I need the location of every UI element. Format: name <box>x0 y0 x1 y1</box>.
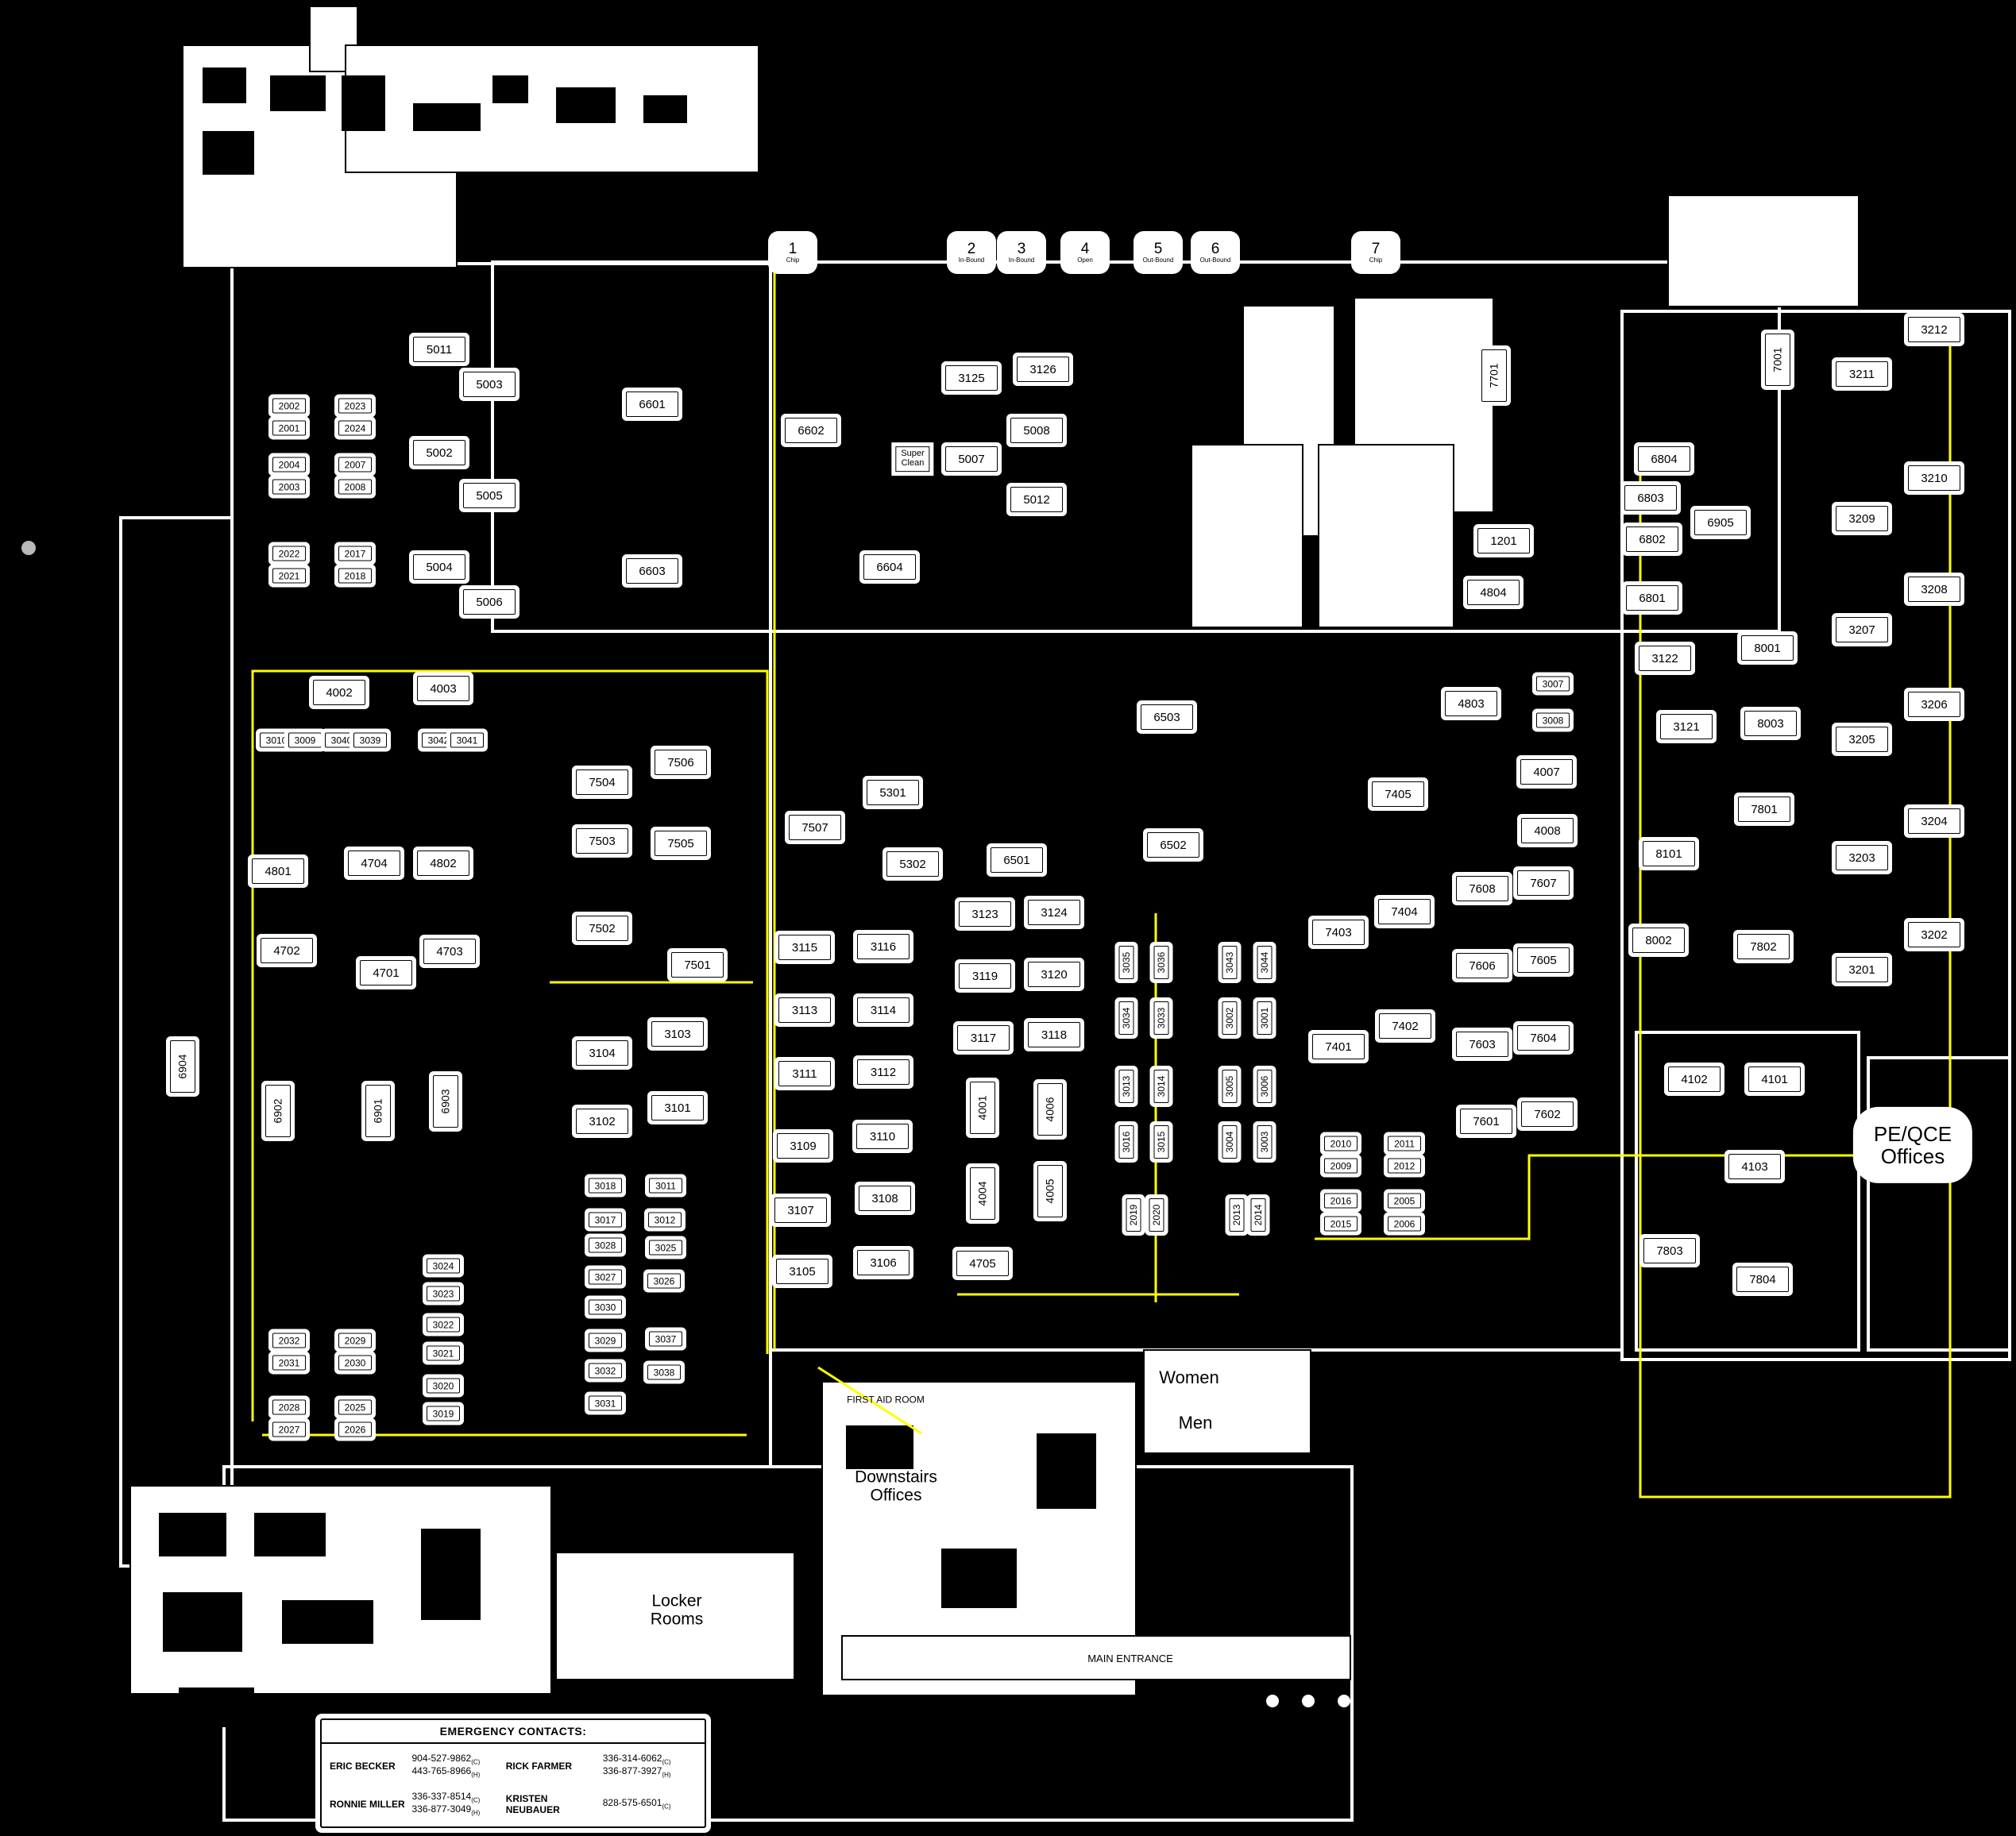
room-7507: 7507 <box>789 815 841 840</box>
contact-name: ERIC BECKER <box>330 1761 411 1772</box>
room-3211: 3211 <box>1836 361 1888 387</box>
room-3105: 3105 <box>776 1259 828 1284</box>
room-3207: 3207 <box>1836 617 1888 642</box>
room-3113: 3113 <box>778 997 831 1023</box>
room-3109: 3109 <box>777 1133 829 1159</box>
room-3123: 3123 <box>959 901 1011 927</box>
super-clean-label: SuperClean <box>895 446 929 472</box>
room-7001: 7001 <box>1765 334 1790 386</box>
room-4003: 4003 <box>417 676 469 701</box>
contact-row: RONNIE MILLER336-337-8514(C)336-877-3049… <box>330 1792 697 1816</box>
room-4102: 4102 <box>1668 1066 1721 1092</box>
room-3022: 3022 <box>427 1317 460 1333</box>
dock-station-number: 7 <box>1372 241 1381 256</box>
room-6905: 6905 <box>1694 510 1747 535</box>
room-3125: 3125 <box>945 365 998 391</box>
room-4008: 4008 <box>1521 818 1574 843</box>
room-6903: 6903 <box>433 1075 458 1128</box>
room-3118: 3118 <box>1028 1022 1080 1047</box>
room-3024: 3024 <box>427 1259 460 1274</box>
room-2017: 2017 <box>338 546 372 561</box>
room-3013: 3013 <box>1119 1070 1134 1103</box>
room-3015: 3015 <box>1154 1125 1169 1159</box>
room-4702: 4702 <box>261 938 313 963</box>
room-2013: 2013 <box>1230 1198 1245 1232</box>
contact-name: RONNIE MILLER <box>330 1799 411 1810</box>
room-5301: 5301 <box>867 780 919 805</box>
room-2025: 2025 <box>338 1400 372 1415</box>
room-7608: 7608 <box>1456 876 1508 901</box>
room-4004: 4004 <box>970 1167 995 1220</box>
room-3038: 3038 <box>647 1365 681 1380</box>
room-2022: 2022 <box>272 546 306 561</box>
room-3012: 3012 <box>648 1213 682 1228</box>
room-3009: 3009 <box>288 733 322 748</box>
room-3008: 3008 <box>1536 713 1570 728</box>
room-4101: 4101 <box>1748 1066 1801 1092</box>
room-3007: 3007 <box>1536 677 1570 692</box>
dot <box>1302 1695 1315 1707</box>
room-2007: 2007 <box>338 457 372 472</box>
aisle-path-lines <box>253 270 1950 1497</box>
room-7504: 7504 <box>576 769 628 795</box>
room-3028: 3028 <box>589 1238 622 1253</box>
room-3011: 3011 <box>649 1178 682 1194</box>
contact-phones: 336-337-8514(C)336-877-3049(H) <box>411 1792 505 1816</box>
dock-station-type-label: Out-Bound <box>1143 256 1174 264</box>
room-6601: 6601 <box>626 391 678 417</box>
room-5007: 5007 <box>945 446 998 472</box>
facility-floor-plan: 2002200120042003202220212023202420072008… <box>0 0 2016 1836</box>
room-3017: 3017 <box>589 1213 622 1228</box>
room-2005: 2005 <box>1388 1194 1421 1209</box>
room-6804: 6804 <box>1638 446 1690 472</box>
room-6802: 6802 <box>1626 526 1678 552</box>
room-3210: 3210 <box>1908 465 1960 491</box>
room-5011: 5011 <box>413 337 465 362</box>
dock-station-6: 6Out-Bound <box>1194 234 1237 271</box>
room-3025: 3025 <box>649 1240 682 1255</box>
room-7505: 7505 <box>655 831 707 856</box>
room-2004: 2004 <box>272 457 306 472</box>
room-3027: 3027 <box>589 1270 622 1285</box>
room-3120: 3120 <box>1028 962 1080 987</box>
room-6501: 6501 <box>991 847 1043 873</box>
room-2023: 2023 <box>338 399 372 414</box>
room-2006: 2006 <box>1388 1217 1421 1232</box>
room-3016: 3016 <box>1119 1125 1134 1159</box>
room-6602: 6602 <box>785 418 837 443</box>
womens-room-label: Women <box>1159 1368 1218 1387</box>
room-2026: 2026 <box>338 1422 372 1437</box>
room-2019: 2019 <box>1126 1198 1141 1232</box>
room-7606: 7606 <box>1456 953 1508 978</box>
room-3032: 3032 <box>589 1363 622 1379</box>
room-1201: 1201 <box>1477 528 1530 553</box>
room-3212: 3212 <box>1908 317 1960 342</box>
room-7405: 7405 <box>1372 781 1424 807</box>
room-2030: 2030 <box>338 1356 372 1371</box>
dock-station-type-label: Open <box>1077 256 1093 264</box>
dock-station-number: 4 <box>1081 241 1090 256</box>
room-3029: 3029 <box>589 1333 622 1348</box>
room-4001: 4001 <box>970 1082 995 1134</box>
room-7604: 7604 <box>1517 1025 1570 1051</box>
room-2028: 2028 <box>272 1400 306 1415</box>
room-2021: 2021 <box>272 569 306 584</box>
room-3206: 3206 <box>1908 692 1960 717</box>
room-2031: 2031 <box>272 1356 306 1371</box>
room-7402: 7402 <box>1379 1013 1431 1039</box>
dock-station-number: 3 <box>1018 241 1026 256</box>
room-3004: 3004 <box>1222 1125 1238 1159</box>
contact-phones: 828-575-6501(C) <box>603 1798 697 1811</box>
room-6603: 6603 <box>626 558 678 584</box>
emergency-contacts-title: EMERGENCY CONTACTS: <box>322 1720 705 1744</box>
room-3103: 3103 <box>651 1021 704 1047</box>
room-3124: 3124 <box>1028 900 1080 925</box>
room-2029: 2029 <box>338 1333 372 1348</box>
room-3035: 3035 <box>1119 946 1134 979</box>
room-3043: 3043 <box>1222 946 1238 979</box>
room-3014: 3014 <box>1154 1070 1169 1103</box>
room-7607: 7607 <box>1517 870 1570 896</box>
room-8001: 8001 <box>1741 635 1794 661</box>
room-7605: 7605 <box>1517 947 1570 973</box>
room-7501: 7501 <box>671 952 724 978</box>
room-3116: 3116 <box>857 934 910 959</box>
dot <box>21 541 36 555</box>
room-5012: 5012 <box>1010 487 1063 512</box>
room-3201: 3201 <box>1836 957 1888 982</box>
room-7804: 7804 <box>1736 1267 1789 1292</box>
emergency-contacts-panel: EMERGENCY CONTACTS: ERIC BECKER904-527-9… <box>320 1718 706 1828</box>
room-3204: 3204 <box>1908 808 1960 834</box>
room-2001: 2001 <box>272 421 306 436</box>
room-3119: 3119 <box>959 963 1011 989</box>
room-2012: 2012 <box>1388 1159 1421 1174</box>
room-4005: 4005 <box>1037 1165 1063 1217</box>
room-2003: 2003 <box>272 480 306 495</box>
room-7506: 7506 <box>655 750 707 775</box>
room-3036: 3036 <box>1154 946 1169 979</box>
dock-station-2: 2In-Bound <box>950 234 993 271</box>
contact-phones: 336-314-6062(C)336-877-3927(H) <box>603 1753 697 1778</box>
room-3019: 3019 <box>427 1406 460 1421</box>
room-7603: 7603 <box>1456 1032 1508 1057</box>
room-3205: 3205 <box>1836 727 1888 752</box>
room-4701: 4701 <box>360 960 412 985</box>
room-7502: 7502 <box>576 916 628 941</box>
dock-station-number: 2 <box>967 241 976 256</box>
room-5005: 5005 <box>463 483 516 508</box>
dock-station-type-label: Chip <box>1369 256 1382 264</box>
room-2002: 2002 <box>272 399 306 414</box>
room-3110: 3110 <box>856 1124 909 1149</box>
room-3121: 3121 <box>1660 714 1713 739</box>
first-aid-room-label: FIRST AID ROOM <box>847 1395 925 1406</box>
room-3033: 3033 <box>1154 1001 1169 1035</box>
contact-name: KRISTEN NEUBAUER <box>506 1793 603 1815</box>
room-3037: 3037 <box>649 1332 682 1347</box>
room-8003: 8003 <box>1744 711 1797 736</box>
room-5302: 5302 <box>886 851 939 877</box>
main-entrance-label: MAIN ENTRANCE <box>1087 1653 1173 1664</box>
room-2008: 2008 <box>338 480 372 495</box>
room-7802: 7802 <box>1737 934 1790 959</box>
room-3023: 3023 <box>427 1286 460 1302</box>
room-4705: 4705 <box>956 1251 1009 1276</box>
room-2010: 2010 <box>1324 1136 1358 1151</box>
room-6803: 6803 <box>1624 485 1677 511</box>
room-4704: 4704 <box>348 850 400 876</box>
room-3021: 3021 <box>427 1346 460 1361</box>
dock-station-4: 4Open <box>1064 234 1106 271</box>
room-2016: 2016 <box>1324 1194 1358 1209</box>
room-3202: 3202 <box>1908 922 1960 947</box>
room-2024: 2024 <box>338 421 372 436</box>
room-3106: 3106 <box>857 1250 910 1275</box>
room-7602: 7602 <box>1521 1101 1574 1127</box>
room-2011: 2011 <box>1388 1136 1421 1151</box>
room-2027: 2027 <box>272 1422 306 1437</box>
room-3104: 3104 <box>576 1040 628 1066</box>
room-3112: 3112 <box>857 1059 910 1085</box>
contact-phones: 904-527-9862(C)443-765-8966(H) <box>411 1753 505 1778</box>
room-3020: 3020 <box>427 1379 460 1394</box>
room-3126: 3126 <box>1017 357 1069 382</box>
room-8002: 8002 <box>1632 928 1685 953</box>
room-3002: 3002 <box>1222 1001 1238 1035</box>
room-3003: 3003 <box>1257 1125 1273 1159</box>
room-5004: 5004 <box>413 554 465 580</box>
room-6902: 6902 <box>265 1085 291 1137</box>
dock-station-type-label: Out-Bound <box>1200 256 1231 264</box>
room-7503: 7503 <box>576 828 628 854</box>
room-3114: 3114 <box>857 997 910 1023</box>
room-3209: 3209 <box>1836 506 1888 531</box>
room-4804: 4804 <box>1467 580 1520 605</box>
dot <box>1338 1695 1350 1707</box>
room-2032: 2032 <box>272 1333 306 1348</box>
room-2018: 2018 <box>338 569 372 584</box>
room-7404: 7404 <box>1378 899 1431 924</box>
room-4103: 4103 <box>1728 1154 1781 1179</box>
room-2020: 2020 <box>1149 1198 1164 1232</box>
dock-station-number: 6 <box>1211 241 1220 256</box>
dot <box>1266 1695 1279 1707</box>
dock-station-number: 1 <box>789 241 798 256</box>
room-3115: 3115 <box>778 935 831 960</box>
dock-station-type-label: In-Bound <box>959 256 984 264</box>
room-3101: 3101 <box>651 1095 704 1120</box>
dock-station-number: 5 <box>1154 241 1163 256</box>
room-3108: 3108 <box>859 1186 911 1211</box>
room-6901: 6901 <box>365 1085 391 1137</box>
room-3005: 3005 <box>1222 1070 1238 1103</box>
emergency-contacts-body: ERIC BECKER904-527-9862(C)443-765-8966(H… <box>322 1744 705 1826</box>
locker-rooms-label: LockerRooms <box>651 1592 704 1628</box>
room-3030: 3030 <box>589 1300 622 1315</box>
room-7601: 7601 <box>1460 1109 1512 1134</box>
peqce-offices-label: PE/QCEOffices <box>1858 1112 1968 1178</box>
room-8101: 8101 <box>1643 841 1695 866</box>
peqce-room <box>1868 1058 2010 1350</box>
room-4801: 4801 <box>252 858 304 884</box>
room-3122: 3122 <box>1639 646 1691 671</box>
room-3006: 3006 <box>1257 1070 1273 1103</box>
room-3044: 3044 <box>1257 946 1273 979</box>
room-6503: 6503 <box>1141 704 1193 730</box>
room-3107: 3107 <box>774 1198 827 1223</box>
room-3026: 3026 <box>647 1274 681 1289</box>
room-3034: 3034 <box>1119 1001 1134 1035</box>
room-3018: 3018 <box>589 1178 622 1194</box>
room-2015: 2015 <box>1324 1217 1358 1232</box>
downstairs-offices-label: DownstairsOffices <box>855 1468 937 1504</box>
room-4006: 4006 <box>1037 1083 1063 1136</box>
room-2009: 2009 <box>1324 1159 1358 1174</box>
room-3031: 3031 <box>589 1396 622 1411</box>
room-5006: 5006 <box>463 589 516 615</box>
dock-station-type-label: Chip <box>786 256 799 264</box>
room-3102: 3102 <box>576 1109 628 1134</box>
contact-row: ERIC BECKER904-527-9862(C)443-765-8966(H… <box>330 1753 697 1778</box>
mens-room-label: Men <box>1179 1414 1213 1433</box>
room-3001: 3001 <box>1257 1001 1273 1035</box>
room-4703: 4703 <box>423 939 476 964</box>
room-6904: 6904 <box>170 1040 195 1093</box>
room-4803: 4803 <box>1445 691 1497 716</box>
dock-station-5: 5Out-Bound <box>1137 234 1180 271</box>
dock-station-type-label: In-Bound <box>1009 256 1034 264</box>
room-4007: 4007 <box>1520 759 1573 785</box>
room-4002: 4002 <box>313 680 365 705</box>
dock-station-1: 1Chip <box>771 234 814 271</box>
room-7401: 7401 <box>1312 1034 1365 1059</box>
contact-name: RICK FARMER <box>506 1761 603 1772</box>
room-3041: 3041 <box>450 733 484 748</box>
room-5008: 5008 <box>1010 418 1063 443</box>
dock-station-7: 7Chip <box>1354 234 1397 271</box>
room-4802: 4802 <box>417 850 469 876</box>
dock-station-3: 3In-Bound <box>1000 234 1043 271</box>
room-3117: 3117 <box>957 1025 1010 1051</box>
room-3203: 3203 <box>1836 845 1888 870</box>
room-3111: 3111 <box>778 1061 831 1086</box>
room-3208: 3208 <box>1908 577 1960 602</box>
room-6502: 6502 <box>1147 832 1199 858</box>
room-5002: 5002 <box>413 440 465 465</box>
room-3039: 3039 <box>353 733 387 748</box>
room-5003: 5003 <box>463 372 516 397</box>
room-7701: 7701 <box>1481 349 1507 402</box>
room-7803: 7803 <box>1643 1238 1696 1263</box>
room-7801: 7801 <box>1738 796 1790 822</box>
room-6604: 6604 <box>863 554 916 580</box>
room-6801: 6801 <box>1626 585 1678 611</box>
room-2014: 2014 <box>1251 1198 1266 1232</box>
room-7403: 7403 <box>1312 920 1365 945</box>
